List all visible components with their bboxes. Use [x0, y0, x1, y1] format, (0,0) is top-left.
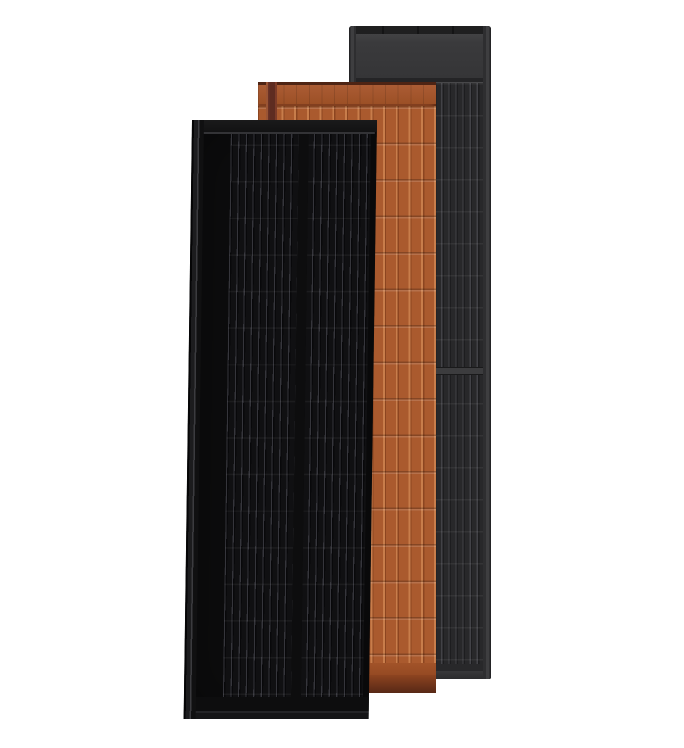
solar-panel-black	[184, 120, 377, 719]
panel-left-seam	[266, 82, 277, 122]
panel-header-band	[356, 34, 483, 78]
panel-bottom-frame	[184, 697, 369, 711]
panel-header-band	[258, 85, 436, 104]
panel-bottom-strip	[184, 713, 369, 719]
panel-frame-right	[483, 26, 491, 679]
panel-mounting-rail	[184, 120, 204, 719]
solar-panel-product-render	[0, 0, 684, 748]
panel-top-frame	[192, 120, 377, 132]
panel-top-edge	[349, 26, 491, 34]
